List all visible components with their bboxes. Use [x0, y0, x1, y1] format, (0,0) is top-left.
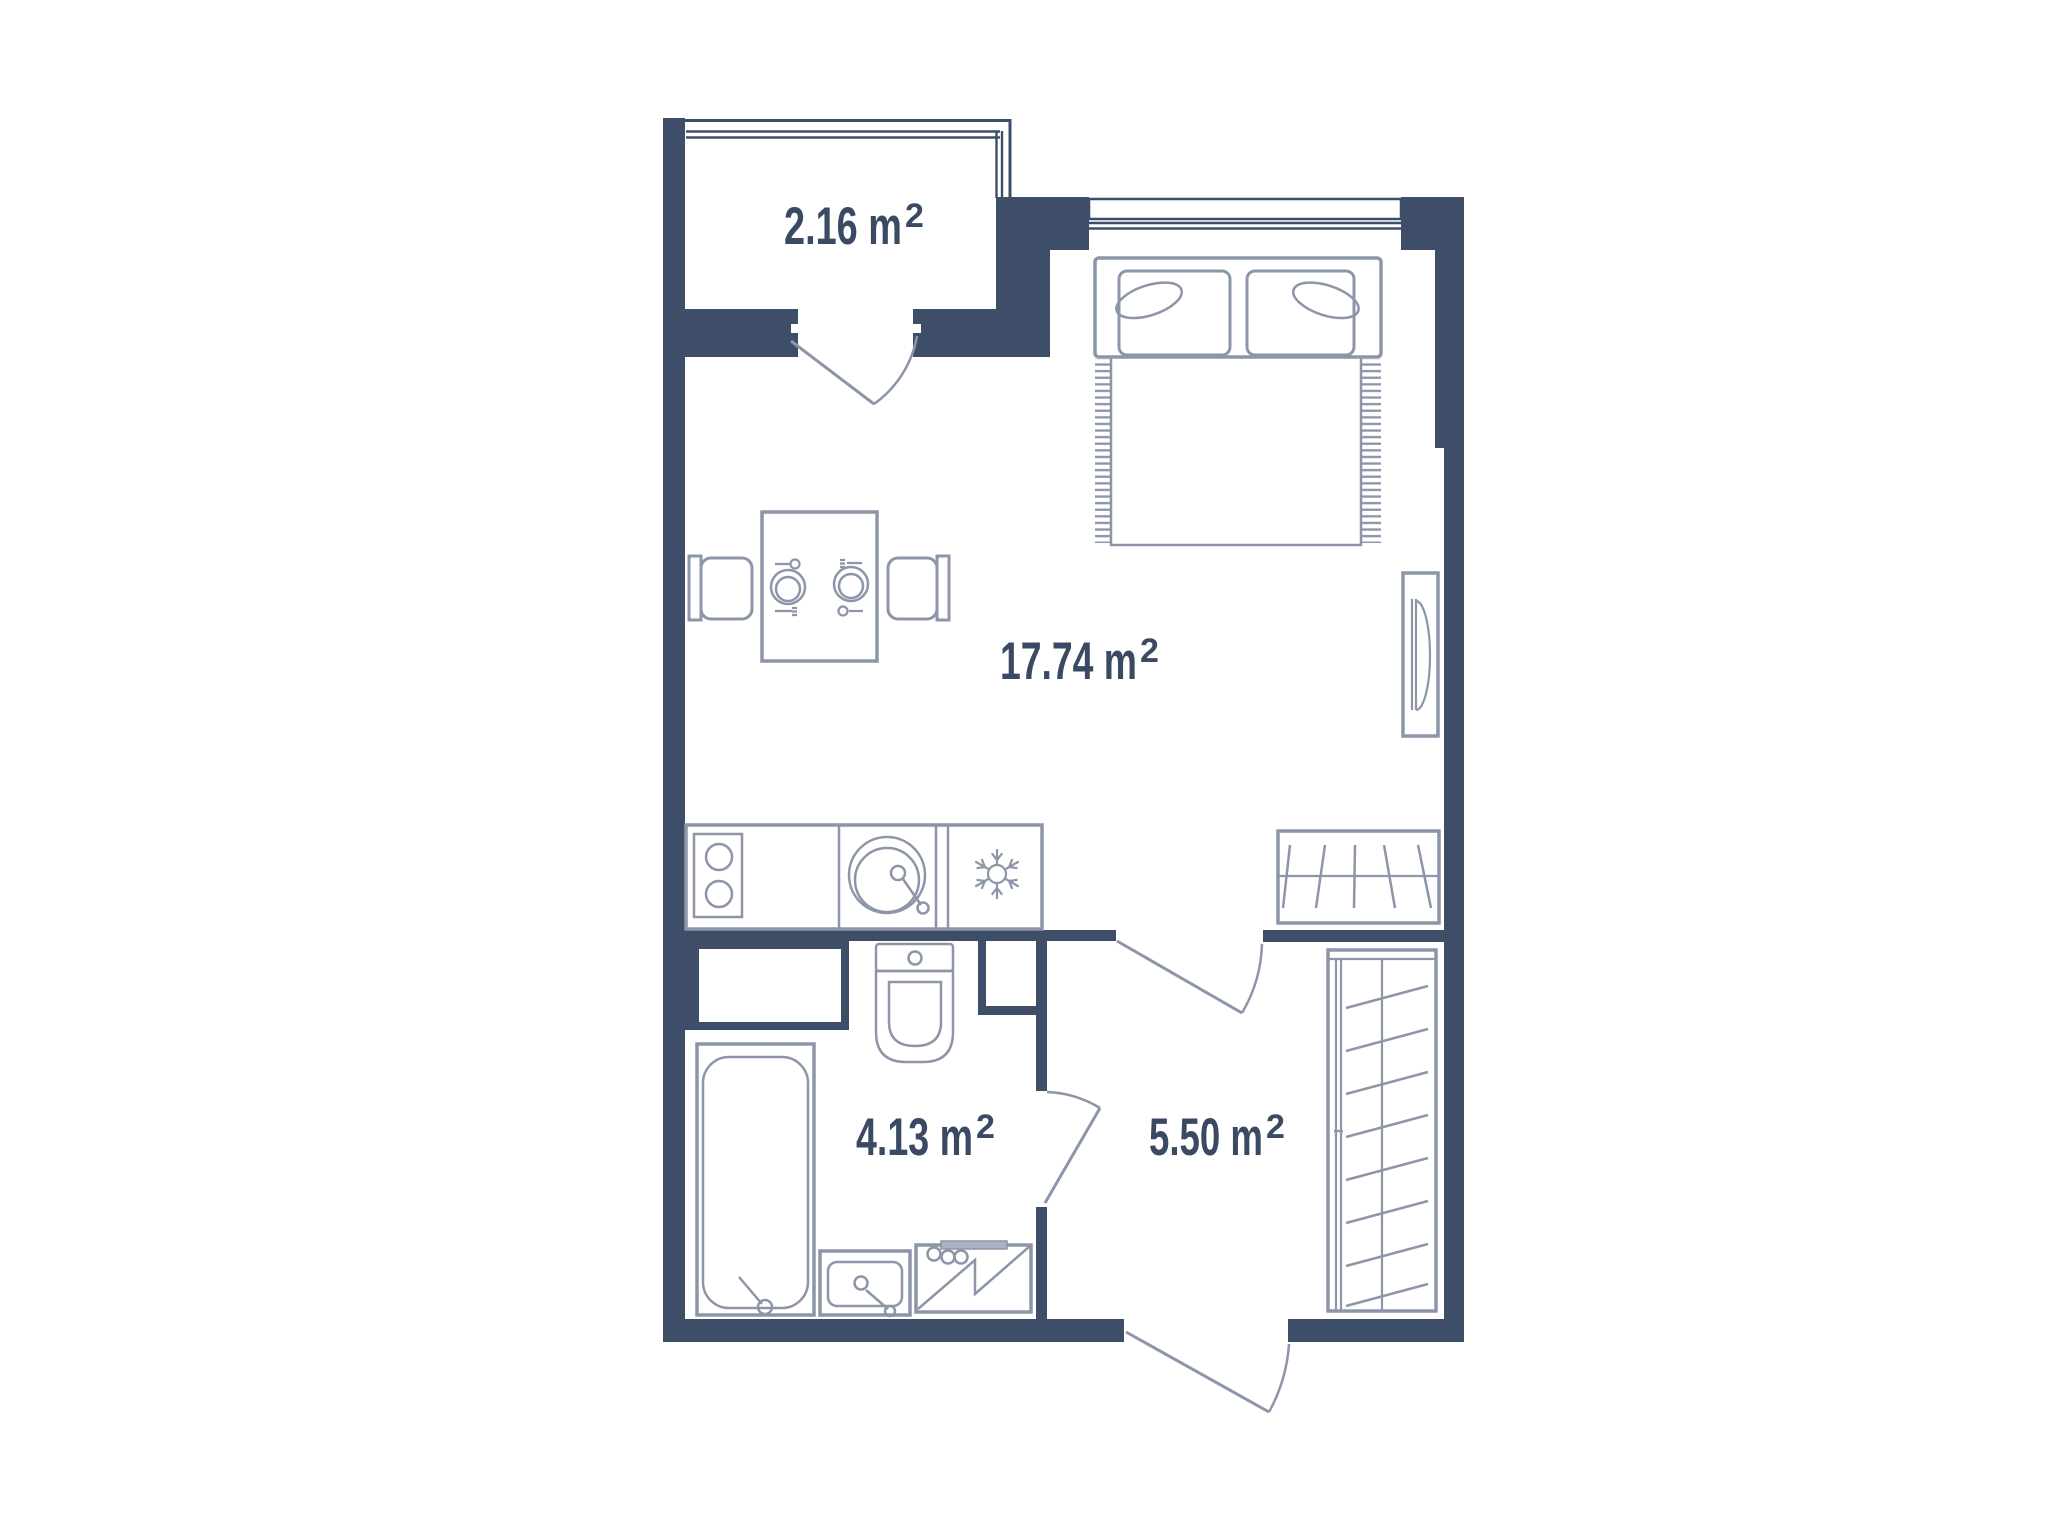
svg-text:2: 2 [1140, 632, 1159, 670]
svg-text:2: 2 [976, 1108, 995, 1146]
svg-text:17.74 m: 17.74 m [1000, 632, 1137, 691]
svg-text:5.50 m: 5.50 m [1149, 1108, 1263, 1167]
svg-text:2.16 m: 2.16 m [784, 197, 902, 256]
svg-text:2: 2 [1266, 1108, 1285, 1146]
svg-text:4.13 m: 4.13 m [856, 1108, 973, 1167]
svg-text:2: 2 [905, 197, 924, 235]
